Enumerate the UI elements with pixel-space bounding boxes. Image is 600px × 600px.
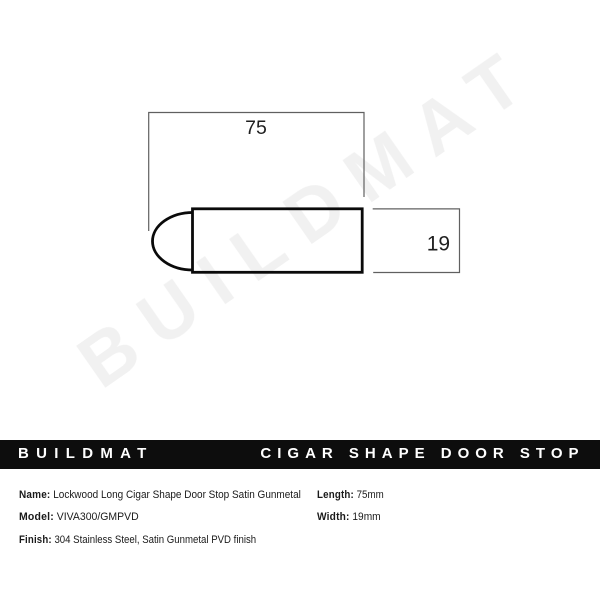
svg-text:19: 19 — [427, 233, 450, 256]
svg-text:75: 75 — [245, 117, 267, 139]
